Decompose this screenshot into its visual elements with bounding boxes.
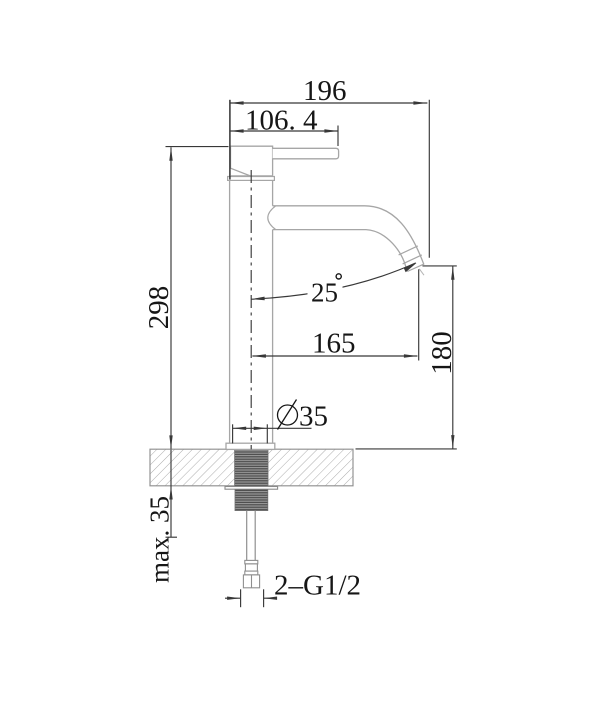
svg-text:max. 35: max. 35 [145, 496, 175, 583]
svg-text:180: 180 [426, 331, 458, 375]
svg-text:2–G1/2: 2–G1/2 [274, 569, 361, 601]
svg-text:106. 4: 106. 4 [245, 104, 318, 136]
svg-text:25: 25 [311, 278, 338, 308]
svg-text:196: 196 [303, 75, 347, 107]
svg-text:165: 165 [312, 327, 356, 359]
svg-text:298: 298 [143, 286, 175, 330]
svg-text:35: 35 [299, 400, 328, 432]
